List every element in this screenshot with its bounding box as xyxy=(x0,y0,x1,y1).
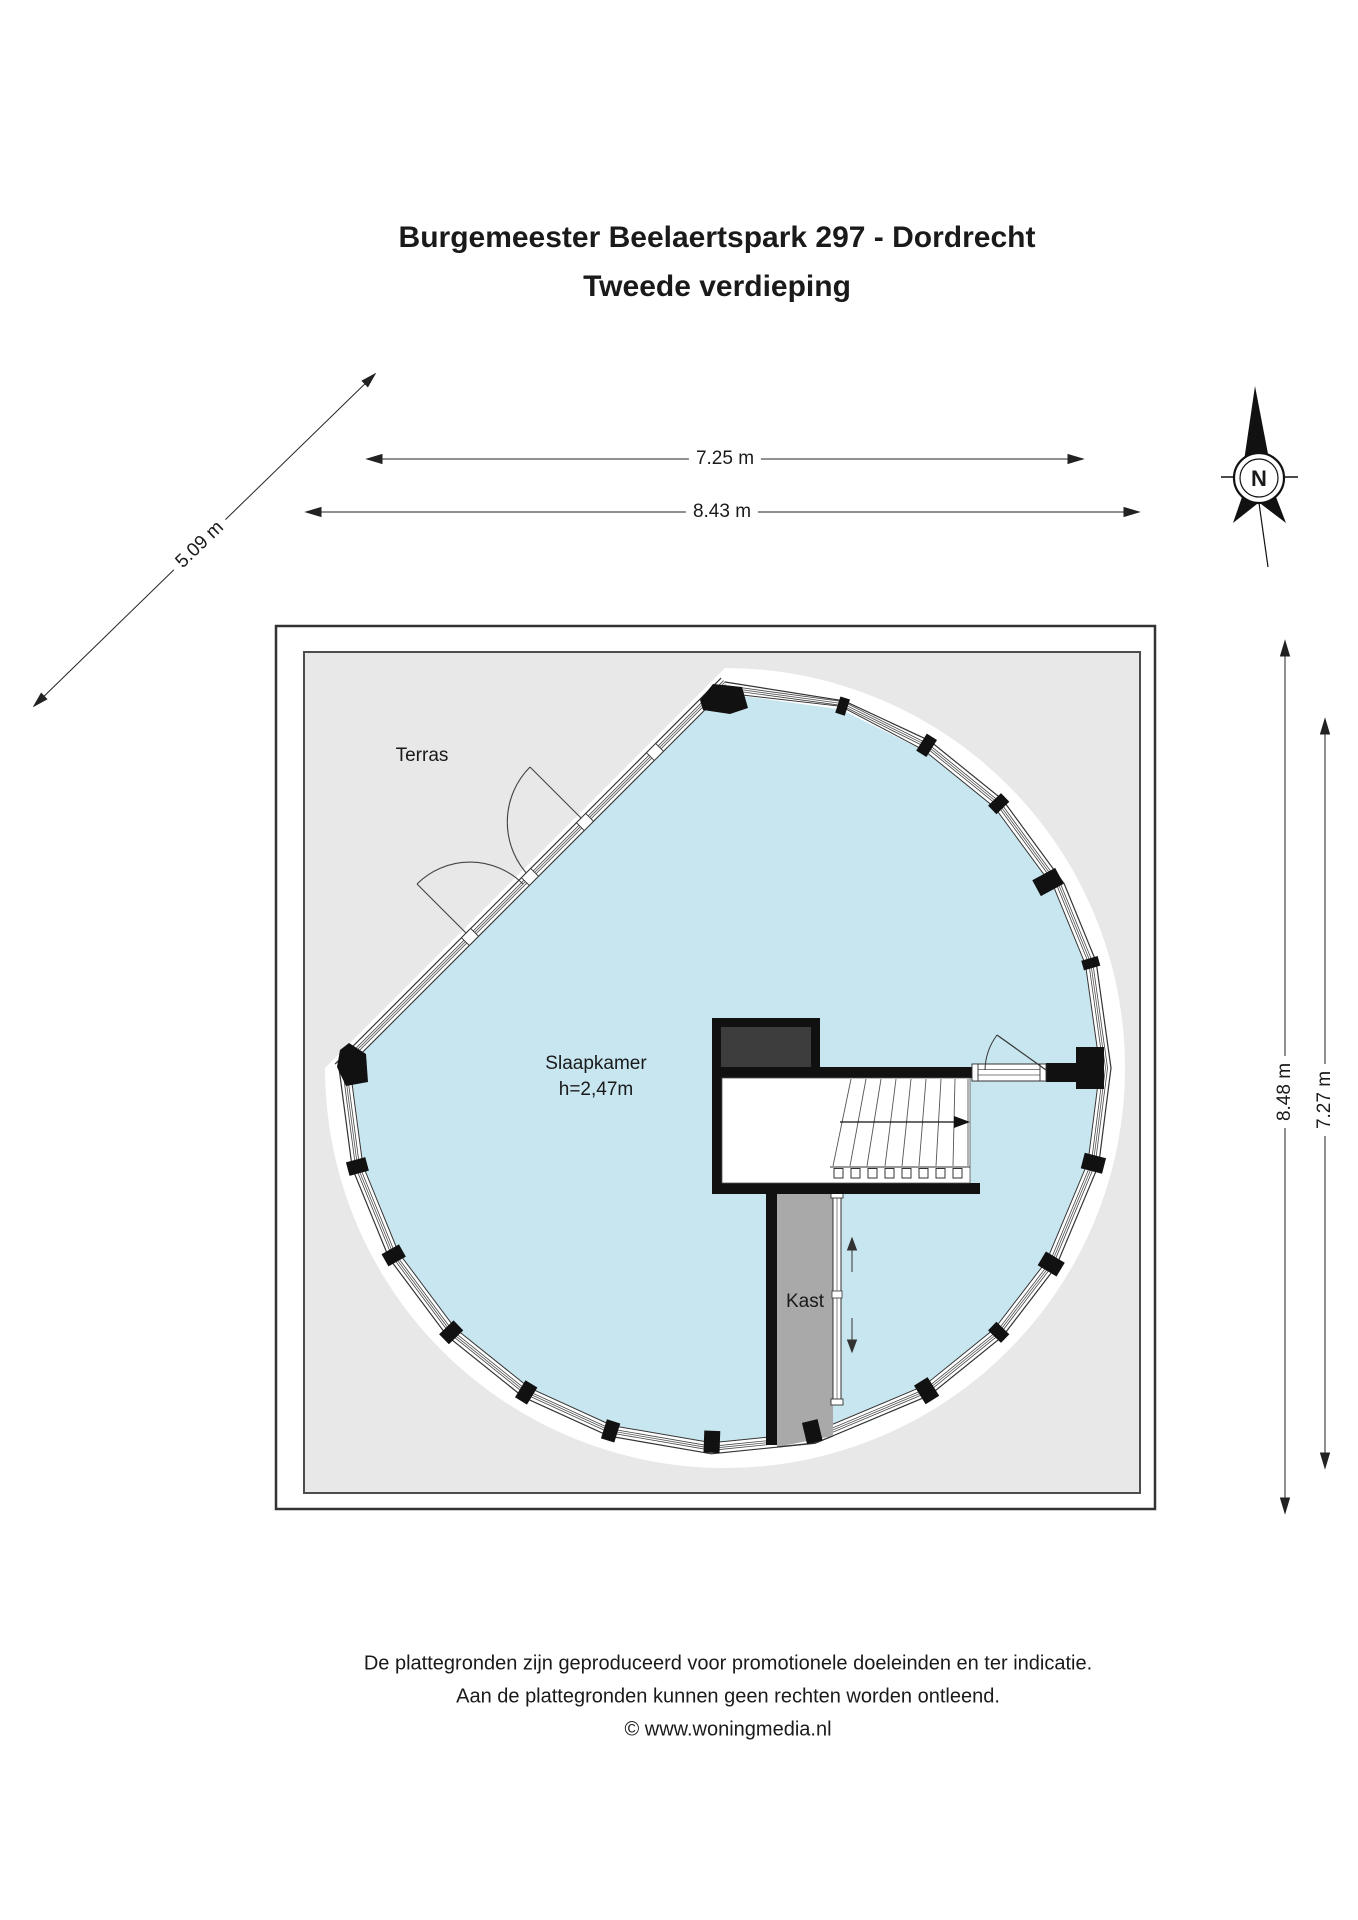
stairwell-bottom-wall xyxy=(712,1183,980,1194)
east-wall-wedge xyxy=(1076,1047,1104,1089)
stairwell-left-wall xyxy=(712,1067,722,1194)
bedroom-label: Slaapkamer xyxy=(545,1053,646,1075)
footer-line3: © www.woningmedia.nl xyxy=(364,1714,1092,1747)
dim-label-top-outer: 8.43 m xyxy=(686,500,758,524)
kast-left-wall xyxy=(766,1192,777,1445)
closet-label: Kast xyxy=(786,1291,824,1313)
footer-line1: De plattegronden zijn geproduceerd voor … xyxy=(364,1648,1092,1681)
east-wall-stub xyxy=(1046,1063,1078,1082)
page-title: Burgemeester Beelaertspark 297 - Dordrec… xyxy=(399,213,1036,311)
page-title-line1: Burgemeester Beelaertspark 297 - Dordrec… xyxy=(399,213,1036,262)
footer-disclaimer: De plattegronden zijn geproduceerd voor … xyxy=(364,1648,1092,1747)
compass-north-label: N xyxy=(1251,466,1267,492)
page-title-line2: Tweede verdieping xyxy=(399,262,1036,311)
floorplan-page: Burgemeester Beelaertspark 297 - Dordrec… xyxy=(0,0,1358,1920)
bedroom-height-label: h=2,47m xyxy=(545,1079,646,1101)
dim-label-right-inner: 7.27 m xyxy=(1313,1064,1337,1136)
compass-tail xyxy=(1259,503,1268,567)
footer-line2: Aan de plattegronden kunnen geen rechten… xyxy=(364,1681,1092,1714)
dim-label-right-outer: 8.48 m xyxy=(1273,1056,1297,1128)
stairwell-shaft-box xyxy=(721,1027,811,1069)
compass-needle xyxy=(1244,386,1269,461)
dim-label-top-inner: 7.25 m xyxy=(689,447,761,471)
stairwell-top-wall xyxy=(712,1067,972,1078)
terrace-label: Terras xyxy=(396,745,449,767)
bedroom-label-block: Slaapkamer h=2,47m xyxy=(545,1053,646,1101)
